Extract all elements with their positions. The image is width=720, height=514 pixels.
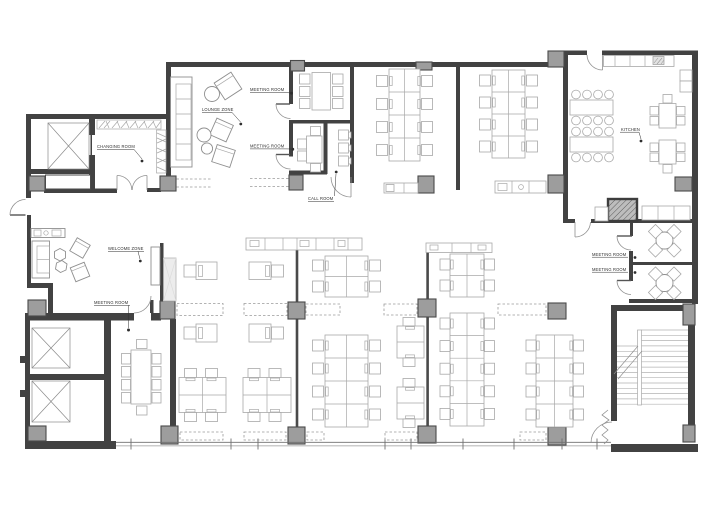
svg-text:CALL ROOM: CALL ROOM (308, 196, 334, 201)
svg-text:CHANGING ROOM: CHANGING ROOM (97, 144, 135, 149)
svg-text:MEETING ROOM: MEETING ROOM (592, 267, 627, 272)
svg-text:WELCOME ZONE: WELCOME ZONE (108, 246, 144, 251)
svg-text:MEETING ROOM: MEETING ROOM (94, 300, 129, 305)
svg-text:MEETING ROOM: MEETING ROOM (250, 87, 285, 92)
svg-text:MEETING ROOM: MEETING ROOM (250, 144, 285, 149)
svg-text:KITCHEN: KITCHEN (621, 127, 640, 132)
svg-text:LOUNGE ZONE: LOUNGE ZONE (202, 107, 234, 112)
svg-text:MEETING ROOM: MEETING ROOM (592, 252, 627, 257)
